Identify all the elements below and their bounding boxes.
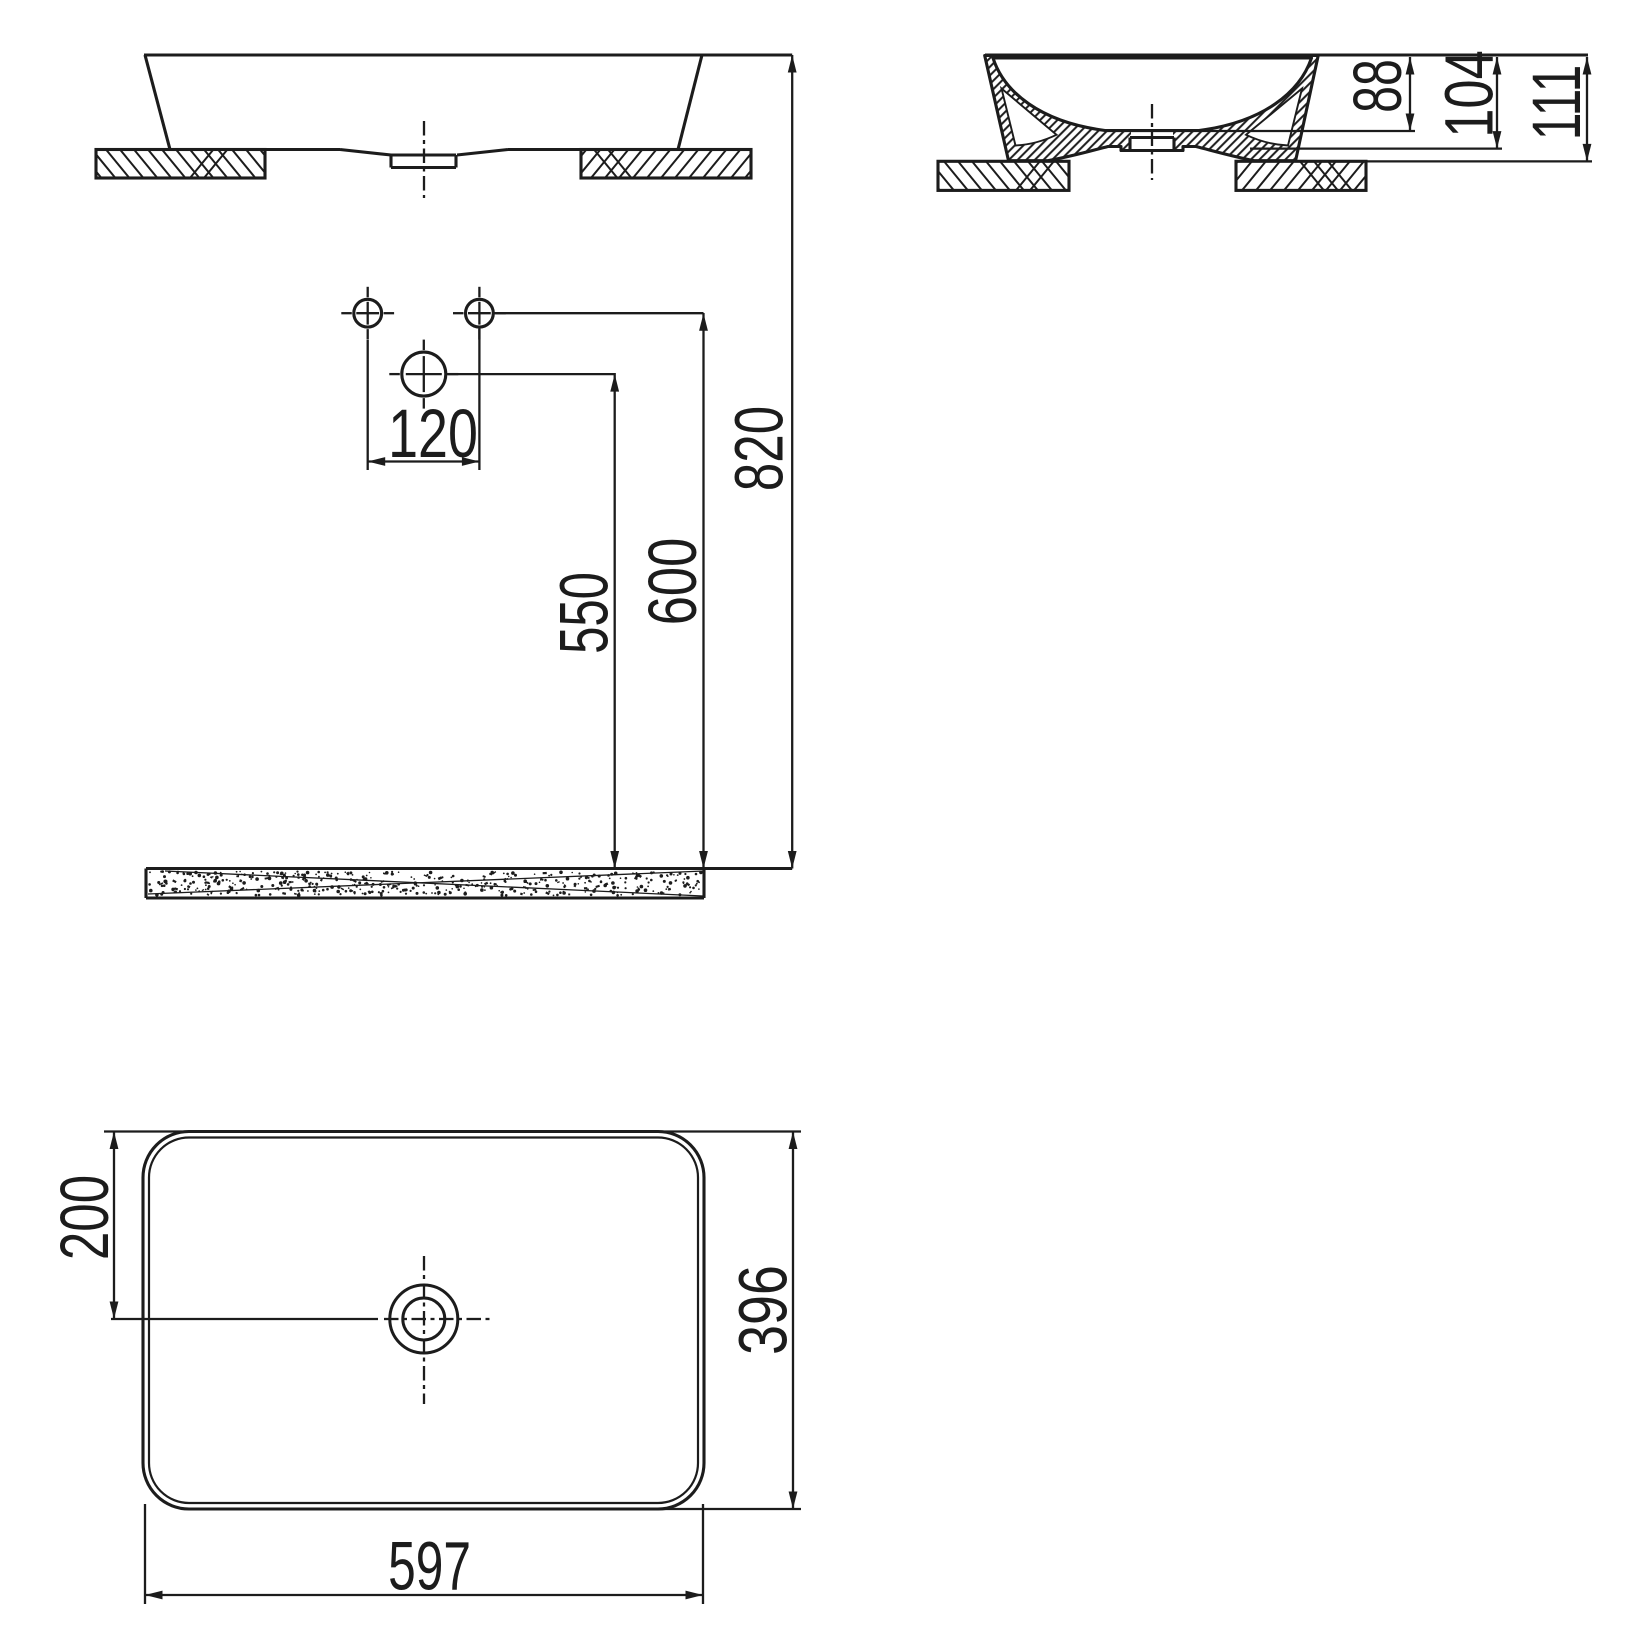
svg-text:600: 600 [634,538,711,625]
svg-text:120: 120 [388,396,478,473]
svg-text:104: 104 [1431,50,1508,137]
svg-text:550: 550 [545,572,622,654]
svg-text:200: 200 [46,1175,123,1260]
svg-text:820: 820 [720,406,797,491]
svg-text:88: 88 [1339,59,1417,113]
svg-text:597: 597 [388,1528,471,1605]
svg-text:111: 111 [1518,65,1595,141]
svg-text:396: 396 [725,1265,802,1355]
